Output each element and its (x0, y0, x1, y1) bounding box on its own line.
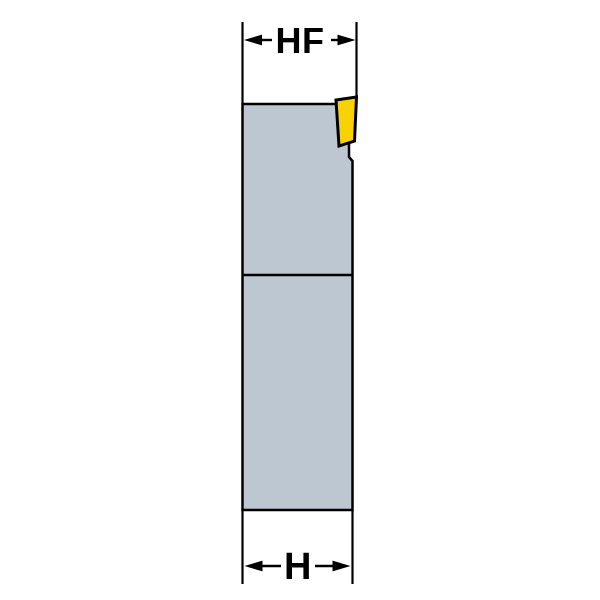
hf-arrow-left-icon (244, 35, 262, 46)
h-dimension-label: H (284, 546, 312, 588)
h-dimension: H (243, 510, 353, 588)
tool-body (243, 104, 353, 510)
cutting-insert (336, 97, 357, 146)
hf-dimension-label: HF (276, 20, 325, 61)
h-arrow-right-icon (333, 561, 351, 572)
hf-arrow-right-icon (338, 35, 356, 46)
drawing-canvas: HF H (0, 0, 600, 600)
hf-dimension: HF (243, 20, 357, 103)
h-arrow-left-icon (245, 561, 263, 572)
tool-holder-diagram: HF H (0, 0, 600, 600)
